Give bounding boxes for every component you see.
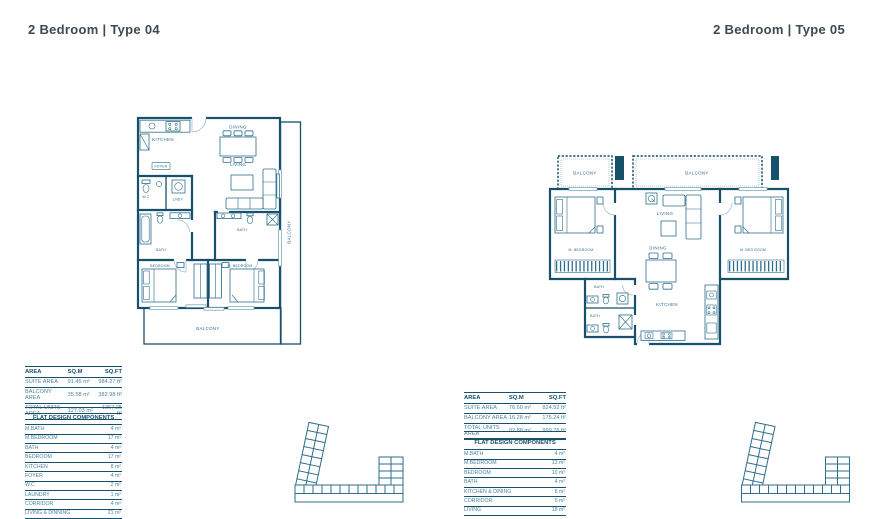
component-label: W.C	[25, 483, 35, 488]
table-row: M.BEDROOM17 m²	[25, 435, 122, 444]
component-value: 8 m²	[111, 465, 121, 470]
table-row: BATH4 m²	[464, 478, 566, 487]
building-key-plan-type05	[727, 417, 862, 512]
page-title-type04: 2 Bedroom | Type 04	[28, 22, 160, 37]
table-row: W.C2 m²	[25, 482, 122, 491]
room-label-balcony-right: BALCONY	[685, 171, 708, 176]
component-label: CORRIDOR	[464, 499, 492, 504]
kitchen-counter-icon	[140, 120, 190, 150]
table-row: BEDROOM10 m²	[464, 469, 566, 478]
table-row: M.BATH4 m²	[464, 450, 566, 459]
component-label: BEDROOM	[25, 455, 52, 460]
component-label: KITCHEN & DINING	[464, 490, 511, 495]
area-sqm: 16.28 m²	[509, 413, 540, 423]
table-row: CORRIDOR5 m²	[464, 497, 566, 506]
table-header-row: AREA SQ.M SQ.FT	[464, 393, 566, 404]
floor-lamp-icon	[646, 193, 657, 204]
component-value: 21 m²	[108, 511, 121, 516]
table-row: LIVING & DINNING21 m²	[25, 510, 122, 519]
area-label: BALCONY AREA	[25, 387, 68, 403]
room-label-living: LIVING	[230, 162, 247, 167]
room-label-balcony-bottom: BALCONY	[196, 326, 219, 331]
room-label-master-bedroom: M. BEDROOM	[228, 264, 253, 268]
building-key-plan-type04	[283, 417, 413, 512]
room-label-bedroom: BEDROOM	[150, 264, 170, 268]
diagonal-wing	[742, 422, 775, 491]
component-value: 17 m²	[108, 455, 121, 460]
sofa-icon	[226, 169, 279, 209]
area-sqm: 35.58 m²	[68, 387, 97, 403]
type05-components-table: FLAT DESIGN COMPONENTS M.BATH4 m² M.BEDR…	[464, 438, 566, 516]
area-sqft: 824.52 ft²	[539, 403, 566, 413]
header-area: AREA	[25, 367, 68, 378]
bathtub-icon	[140, 213, 190, 244]
header-sqm: SQ.M	[68, 367, 97, 378]
type04-components-table: FLAT DESIGN COMPONENTS M.BATH4 m² M.BEDR…	[25, 413, 122, 519]
dining-table-icon	[646, 253, 676, 289]
bed-icon	[222, 263, 264, 303]
component-label: M.BEDROOM	[464, 461, 497, 466]
area-sqft: 175.24 ft²	[539, 413, 566, 423]
table-row: SUITE AREA 76.60 m² 824.52 ft²	[464, 403, 566, 413]
component-value: 4 m²	[111, 502, 121, 507]
table-row: BATH4 m²	[25, 444, 122, 453]
toilet-icon	[142, 180, 162, 193]
component-value: 4 m²	[111, 427, 121, 432]
kitchen-counter-icon	[641, 285, 718, 341]
table-row: BALCONY AREA 16.28 m² 175.24 ft²	[464, 413, 566, 423]
component-value: 2 m²	[111, 483, 121, 488]
right-wing	[826, 457, 850, 485]
header-area: AREA	[464, 393, 509, 404]
area-label: SUITE AREA	[25, 377, 68, 387]
room-label-master-bedroom-left: M. BEDROOM	[569, 248, 594, 252]
area-sqft: 382.98 ft²	[97, 387, 122, 403]
type04-area-table: AREA SQ.M SQ.FT SUITE AREA 91.45 m² 984.…	[25, 366, 122, 420]
room-label-master-bedroom-right: M. BED ROOM	[740, 248, 766, 252]
wardrobe-icon	[728, 260, 784, 273]
component-label: M.BEDROOM	[25, 436, 58, 441]
wall-pillar	[615, 156, 624, 180]
right-wing	[379, 457, 403, 485]
table-row: KITCHEN8 m²	[25, 463, 122, 472]
room-label-master-bath: BATH	[237, 228, 247, 232]
divider	[464, 431, 566, 432]
component-value: 4 m²	[111, 474, 121, 479]
table-row: M.BEDROOM13 m²	[464, 460, 566, 469]
component-value: 1 m²	[111, 493, 121, 498]
table-row: LAUNDRY1 m²	[25, 491, 122, 500]
component-value: 17 m²	[108, 436, 121, 441]
header-sqft: SQ.FT	[97, 367, 122, 378]
table-row: BALCONY AREA 35.58 m² 382.98 ft²	[25, 387, 122, 403]
table-row: CORRIDOR4 m²	[25, 500, 122, 509]
component-label: M.BATH	[464, 452, 483, 457]
area-sqft: 984.27 ft²	[97, 377, 122, 387]
room-label-wc: W.C	[142, 195, 149, 199]
type04-floor-plan: FOYER KITCHEN DINING LIVING W.C LNDY BAT…	[130, 112, 310, 358]
room-label-kitchen: KITCHEN	[656, 302, 678, 307]
component-label: M.BATH	[25, 427, 44, 432]
area-label: SUITE AREA	[464, 403, 509, 413]
room-label-bath-upper: BATH	[594, 285, 604, 289]
component-label: CORRIDOR	[25, 502, 53, 507]
room-label-dining: DINING	[649, 246, 667, 251]
page-title-type05: 2 Bedroom | Type 05	[713, 22, 845, 37]
room-label-balcony-right: BALCONY	[287, 220, 292, 243]
area-label: BALCONY AREA	[464, 413, 509, 423]
dining-table-icon	[220, 131, 256, 163]
type05-area-table: AREA SQ.M SQ.FT SUITE AREA 76.60 m² 824.…	[464, 392, 566, 440]
header-sqft: SQ.FT	[539, 393, 566, 404]
bed-icon	[735, 197, 783, 233]
component-label: LAUNDRY	[25, 493, 50, 498]
table-header-row: AREA SQ.M SQ.FT	[25, 367, 122, 378]
divider	[25, 407, 122, 408]
components-table-title: FLAT DESIGN COMPONENTS	[25, 413, 122, 425]
table-row: LIVING18 m²	[464, 507, 566, 516]
room-label-kitchen: KITCHEN	[152, 137, 174, 142]
bed-icon	[555, 197, 603, 233]
area-sqm: 91.45 m²	[68, 377, 97, 387]
area-sqm: 76.60 m²	[509, 403, 540, 413]
washer-icon	[172, 180, 185, 193]
components-table-title: FLAT DESIGN COMPONENTS	[464, 438, 566, 450]
component-value: 13 m²	[552, 461, 565, 466]
component-value: 8 m²	[555, 490, 565, 495]
component-label: BATH	[25, 446, 38, 451]
table-row: KITCHEN & DINING8 m²	[464, 488, 566, 497]
component-value: 4 m²	[111, 446, 121, 451]
component-value: 4 m²	[555, 452, 565, 457]
table-row: SUITE AREA 91.45 m² 984.27 ft²	[25, 377, 122, 387]
sofa-icon	[661, 195, 701, 239]
wardrobe-icon	[555, 260, 610, 273]
component-label: BATH	[464, 480, 477, 485]
header-sqm: SQ.M	[509, 393, 540, 404]
component-label: FOYER	[25, 474, 43, 479]
bottom-row-wing	[742, 485, 850, 502]
bottom-row-wing	[295, 485, 403, 502]
room-label-living: LIVING	[657, 211, 674, 216]
type05-floor-plan: BALCONY BALCONY M. BEDROOM M. BED ROOM L…	[545, 147, 793, 347]
room-label-dining: DINING	[229, 125, 247, 130]
component-label: BEDROOM	[464, 471, 491, 476]
wall-pillar	[771, 156, 779, 180]
room-label-bath: BATH	[156, 248, 166, 252]
component-value: 5 m²	[555, 499, 565, 504]
table-row: M.BATH4 m²	[25, 425, 122, 434]
room-label-balcony-left: BALCONY	[573, 171, 596, 176]
room-label-foyer: FOYER	[154, 165, 167, 169]
table-row: FOYER4 m²	[25, 472, 122, 481]
component-value: 10 m²	[552, 471, 565, 476]
table-row: BEDROOM17 m²	[25, 453, 122, 462]
bath-fixtures	[587, 293, 632, 333]
component-label: LIVING & DINNING	[25, 511, 70, 516]
shower-icon	[217, 213, 278, 225]
component-label: KITCHEN	[25, 465, 48, 470]
diagonal-wing	[295, 422, 328, 491]
room-label-bath-lower: BATH	[590, 314, 600, 318]
component-value: 4 m²	[555, 480, 565, 485]
room-label-laundry: LNDY	[173, 198, 184, 202]
